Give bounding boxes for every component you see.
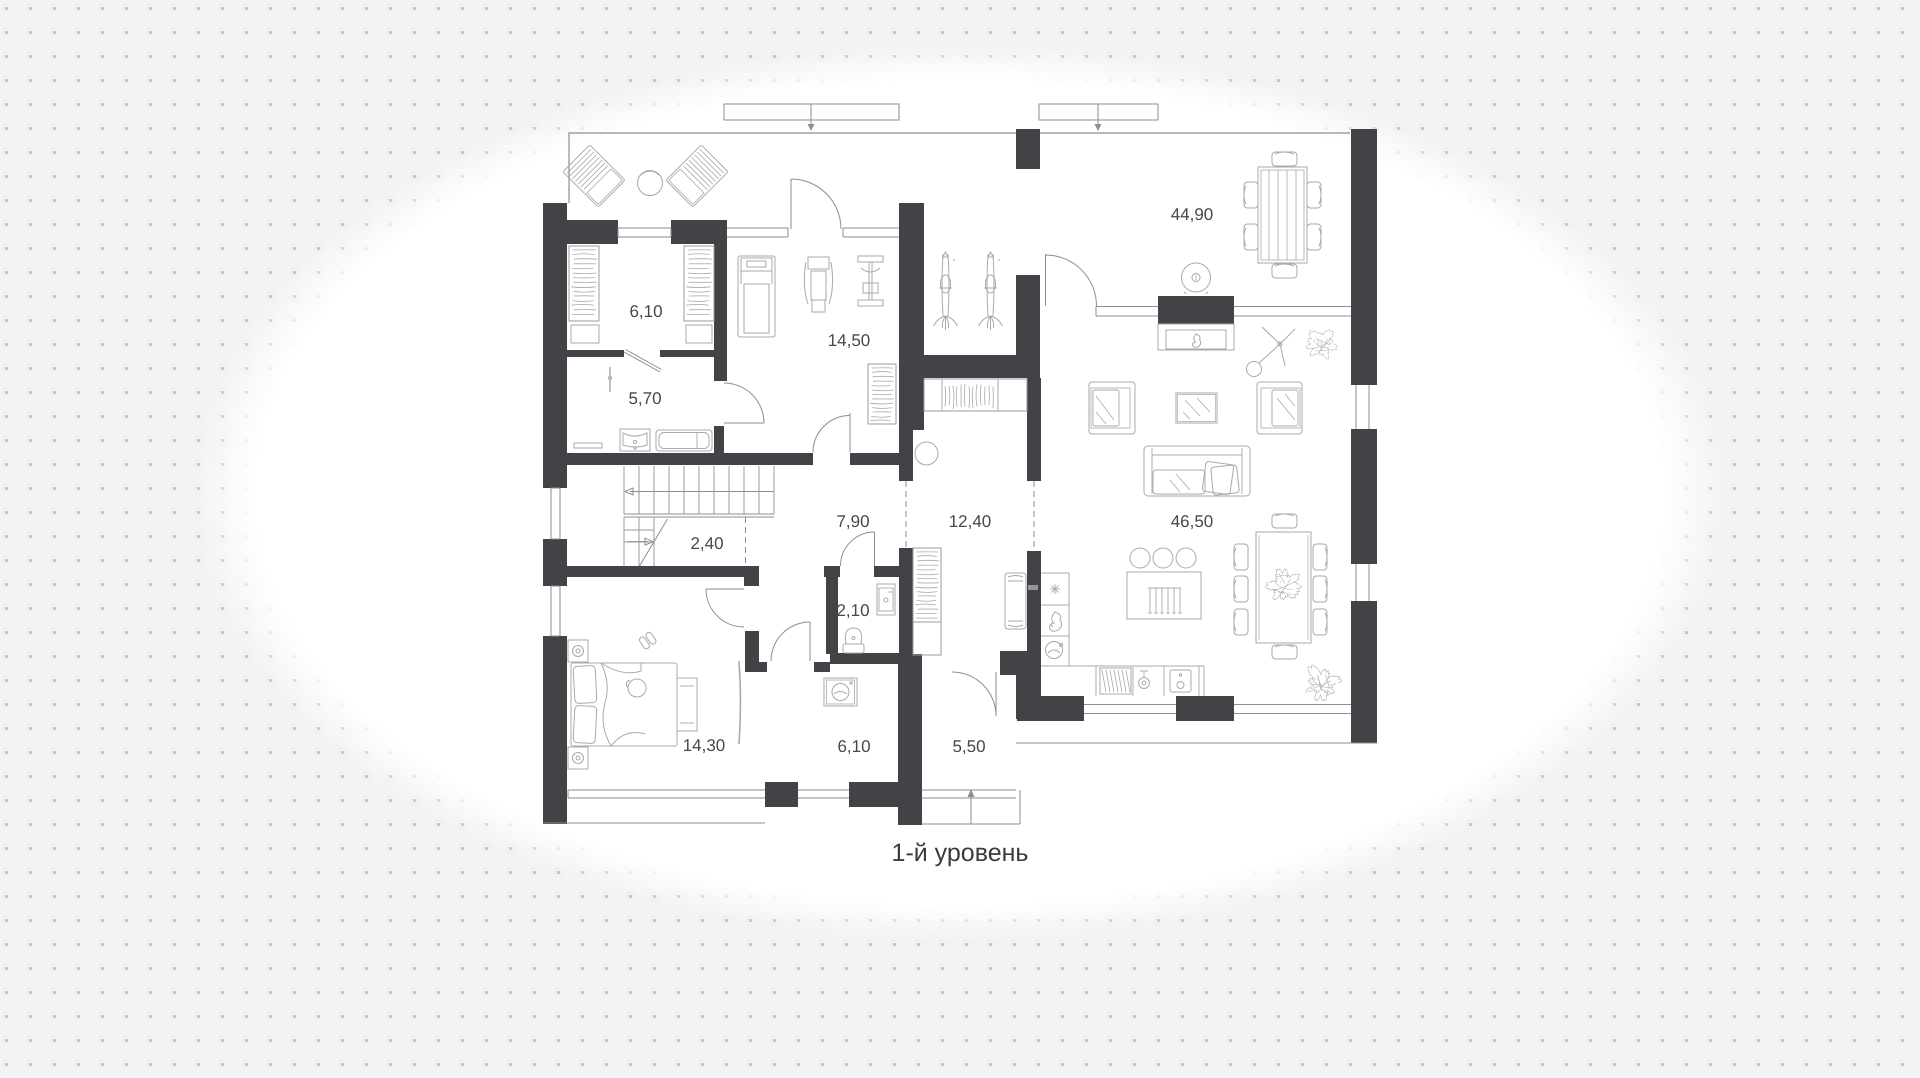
- svg-text:44,90: 44,90: [1171, 205, 1214, 224]
- svg-text:7,90: 7,90: [836, 512, 869, 531]
- svg-text:12,40: 12,40: [949, 512, 992, 531]
- svg-text:14,30: 14,30: [683, 736, 726, 755]
- svg-text:2,40: 2,40: [690, 534, 723, 553]
- svg-text:1-й уровень: 1-й уровень: [892, 839, 1029, 867]
- svg-text:14,50: 14,50: [828, 331, 871, 350]
- svg-text:46,50: 46,50: [1171, 512, 1214, 531]
- svg-text:2,10: 2,10: [836, 601, 869, 620]
- svg-text:6,10: 6,10: [837, 737, 870, 756]
- svg-text:5,70: 5,70: [628, 389, 661, 408]
- svg-text:6,10: 6,10: [629, 302, 662, 321]
- svg-text:5,50: 5,50: [952, 737, 985, 756]
